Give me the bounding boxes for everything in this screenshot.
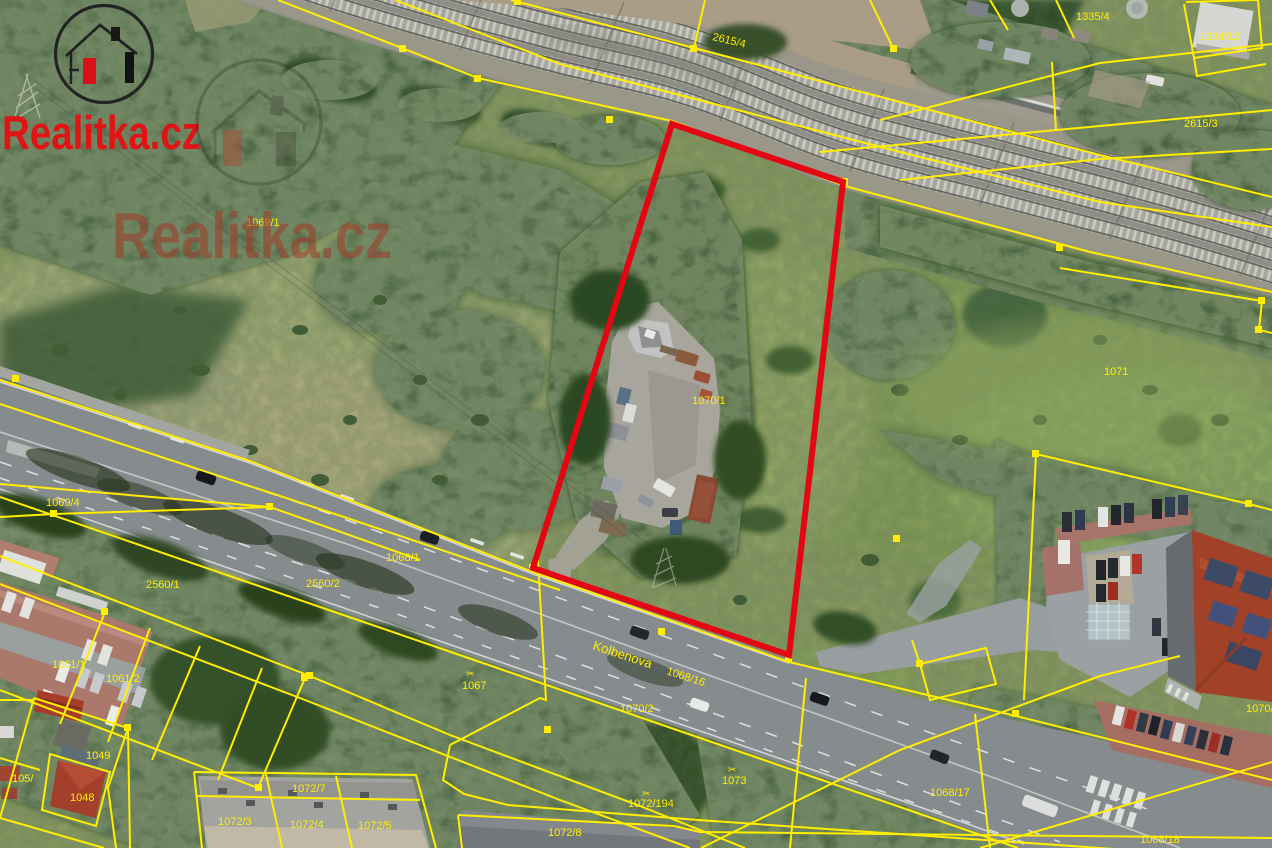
svg-text:1068/18: 1068/18: [1140, 834, 1180, 846]
svg-text:2615/3: 2615/3: [1184, 118, 1218, 130]
svg-text:Realitka.cz: Realitka.cz: [112, 199, 392, 272]
svg-text:1061/2: 1061/2: [106, 673, 140, 685]
svg-text:1068/1: 1068/1: [386, 552, 420, 564]
svg-text:Realitka.cz: Realitka.cz: [2, 106, 201, 159]
svg-text:1061/1: 1061/1: [52, 659, 86, 671]
svg-text:1072/5: 1072/5: [358, 820, 392, 832]
svg-text:2560/1: 2560/1: [146, 579, 180, 591]
svg-text:105/: 105/: [12, 773, 34, 785]
svg-text:✂: ✂: [466, 669, 474, 680]
svg-text:✂: ✂: [728, 765, 736, 776]
svg-text:1070/2: 1070/2: [620, 703, 654, 715]
svg-text:✂: ✂: [642, 789, 650, 800]
svg-text:1048: 1048: [70, 792, 94, 804]
svg-text:1072/4: 1072/4: [290, 819, 324, 831]
svg-text:1068/17: 1068/17: [930, 787, 970, 799]
svg-text:1073: 1073: [722, 775, 746, 787]
svg-text:1071: 1071: [1104, 366, 1128, 378]
svg-text:1069/4: 1069/4: [46, 497, 80, 509]
svg-text:1334/12: 1334/12: [1200, 31, 1240, 43]
svg-text:1070/: 1070/: [1246, 703, 1272, 715]
svg-text:1072/7: 1072/7: [292, 783, 326, 795]
svg-text:2560/2: 2560/2: [306, 578, 340, 590]
svg-text:1072/194: 1072/194: [628, 798, 674, 810]
svg-text:1067: 1067: [462, 680, 486, 692]
svg-text:1072/3: 1072/3: [218, 816, 252, 828]
svg-text:1049: 1049: [86, 750, 110, 762]
svg-text:1335/4: 1335/4: [1076, 11, 1110, 23]
svg-text:1070/1: 1070/1: [692, 395, 726, 407]
svg-text:1072/8: 1072/8: [548, 827, 582, 839]
